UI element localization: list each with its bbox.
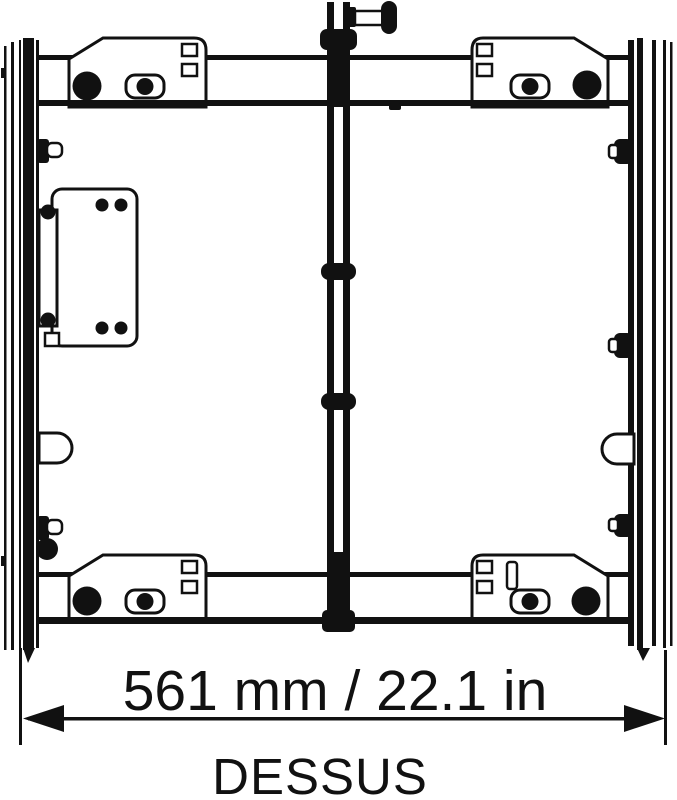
right-rail-clip-bottom [609,514,633,537]
rail-foot [637,648,650,661]
bracket-square-slot [182,561,197,573]
clamp-screw-shaft [355,11,384,25]
extension-line-left [19,648,22,745]
left-rail-clip-top [37,139,62,163]
plate-bolt [41,205,56,220]
rod-collar [321,263,356,280]
corner-bolt [573,71,602,100]
center-divider-rod [320,2,357,632]
captive-screw [137,78,154,95]
rail-nub [1,68,6,78]
extension-line-right [664,650,667,745]
bracket-vertical-slot [507,562,517,589]
plate-screw [96,199,109,212]
captive-screw [522,78,539,95]
left-handle-cutout [39,433,72,463]
corner-bolt [572,587,601,616]
bottom-left-corner-bracket [69,555,206,620]
left-connector-plate [39,189,137,346]
rod-collar [321,393,356,410]
bracket-square-slot [477,64,492,76]
bracket-square-slot [477,561,492,573]
clamp-screw-t-handle [381,1,397,34]
rail-foot [23,648,35,663]
right-rail-clip-top [609,139,633,164]
bracket-square-slot [182,44,197,56]
bracket-square-slot [182,64,197,76]
frame-detail-tab [389,103,401,110]
plate-screw [115,322,128,335]
bracket-square-slot [477,581,492,593]
plate-screw [96,322,109,335]
rod-collar [320,29,357,50]
left-rail-clip-bottom [36,516,62,560]
right-side-rail [628,38,673,661]
clip-bolt [36,538,58,560]
dimension-arrow-left [23,705,64,732]
view-label: DESSUS [0,751,640,800]
right-rail-clip-middle [609,333,633,358]
bracket-square-slot [182,581,197,593]
rail-nub [1,556,6,566]
top-right-corner-bracket [472,38,608,107]
right-handle-cutout [602,434,634,464]
corner-bolt [73,72,102,101]
captive-screw [137,593,154,610]
rod-end-collar [322,610,355,632]
bottom-right-corner-bracket [472,555,608,620]
plate-corner-tab [45,333,59,346]
plate-screw [115,199,128,212]
dimension-arrow-right [624,705,665,732]
captive-screw [522,593,539,610]
dimension-label: 561 mm / 22.1 in [60,663,610,720]
bracket-square-slot [477,44,492,56]
top-left-corner-bracket [69,38,206,107]
drawing-page: 561 mm / 22.1 in DESSUS [0,0,677,800]
clamp-screw [347,1,397,34]
corner-bolt [73,587,102,616]
plate-mount-tab [39,210,57,326]
left-side-rail [1,38,39,663]
plate-bolt [41,313,56,328]
